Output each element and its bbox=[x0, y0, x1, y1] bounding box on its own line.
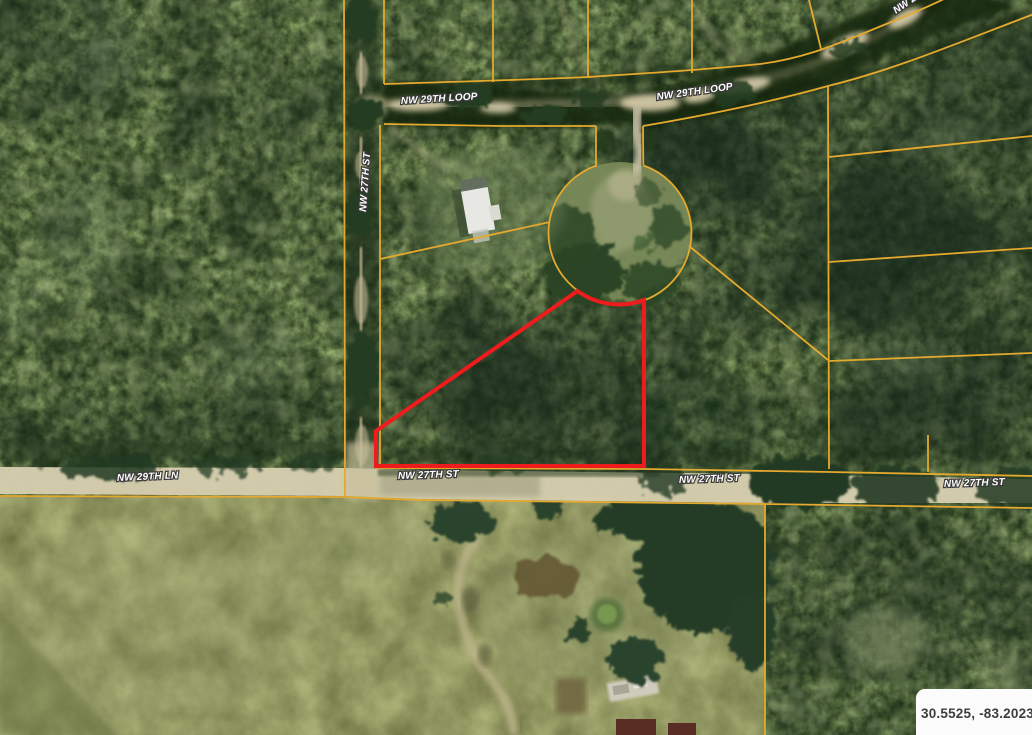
svg-text:NW 27TH ST: NW 27TH ST bbox=[679, 473, 741, 486]
svg-text:NW 27TH ST: NW 27TH ST bbox=[398, 469, 460, 482]
svg-text:NW 27TH ST: NW 27TH ST bbox=[944, 477, 1006, 490]
svg-text:30.5525, -83.2023: 30.5525, -83.2023 bbox=[921, 706, 1032, 721]
